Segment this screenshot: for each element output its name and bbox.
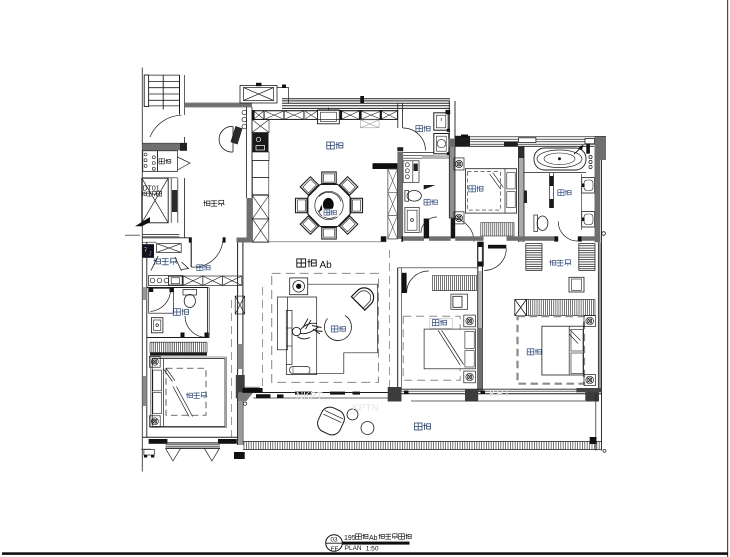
svg-text:7: 7 bbox=[144, 247, 148, 254]
svg-text:PLAN: PLAN bbox=[345, 545, 362, 552]
svg-text:03: 03 bbox=[331, 536, 338, 543]
svg-text:1:50: 1:50 bbox=[366, 545, 379, 552]
svg-text:195: 195 bbox=[344, 535, 356, 542]
svg-text:J: J bbox=[149, 252, 152, 258]
svg-text:KPT: KPT bbox=[489, 388, 511, 400]
svg-text:KPTN: KPTN bbox=[352, 403, 379, 414]
svg-text:Ab: Ab bbox=[369, 535, 378, 542]
svg-text:NKPT: NKPT bbox=[296, 391, 323, 402]
svg-text:FF: FF bbox=[331, 546, 339, 553]
svg-text:Ab: Ab bbox=[320, 260, 333, 271]
